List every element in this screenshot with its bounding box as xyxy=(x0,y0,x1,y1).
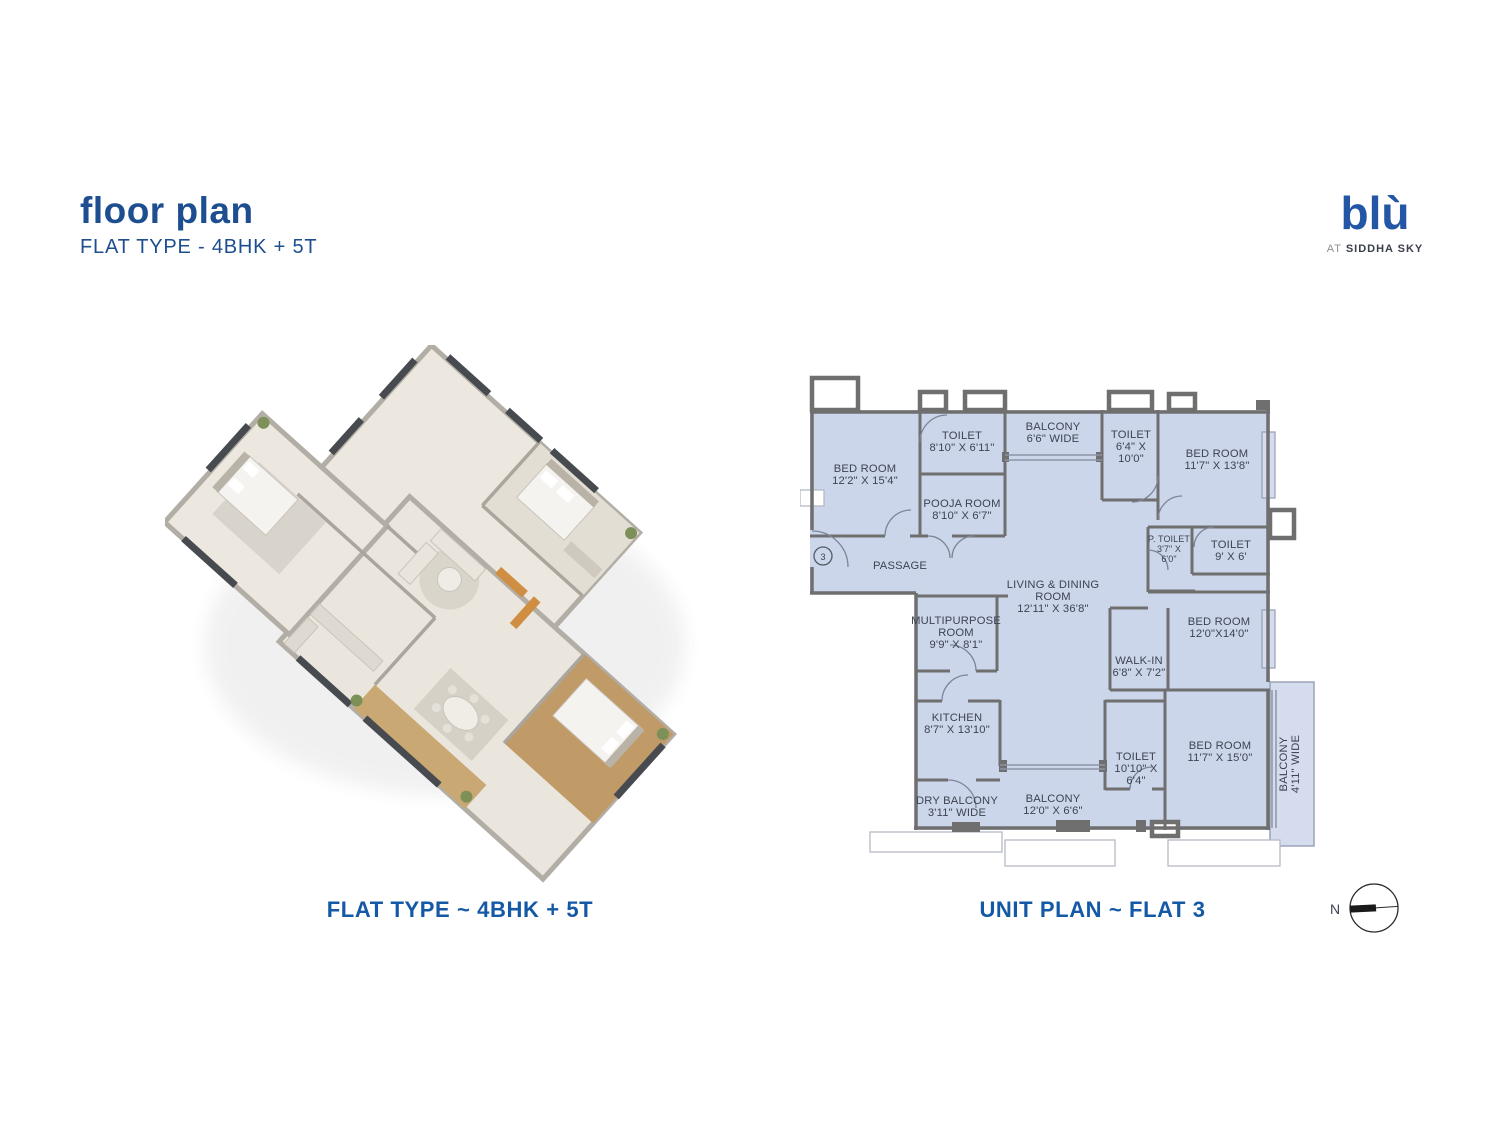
svg-text:11'7" X 15'0": 11'7" X 15'0" xyxy=(1188,752,1253,764)
svg-text:8'10" X 6'11": 8'10" X 6'11" xyxy=(930,442,995,454)
room-label-p-toilet: P. TOILET xyxy=(1148,534,1190,544)
unit-plan-figure: 3 BED ROOM 12'2" X 15'4" TOILET 8'10" X … xyxy=(800,360,1320,875)
page-subtitle: FLAT TYPE - 4BHK + 5T xyxy=(80,236,317,259)
room-label-toilet-4: TOILET xyxy=(1116,751,1156,763)
room-label-toilet-2: TOILET xyxy=(1111,429,1151,441)
compass: N xyxy=(1318,878,1418,940)
room-label-kitchen: KITCHEN xyxy=(932,712,983,724)
room-label-balcony-right: BALCONY xyxy=(1278,736,1290,791)
svg-text:10'0": 10'0" xyxy=(1118,453,1144,465)
svg-text:6'8" X 7'2": 6'8" X 7'2" xyxy=(1113,667,1166,679)
svg-text:6'6" WIDE: 6'6" WIDE xyxy=(1027,433,1080,445)
room-label-pooja: POOJA ROOM xyxy=(923,498,1000,510)
svg-text:3'11" WIDE: 3'11" WIDE xyxy=(928,807,986,819)
svg-text:10'10" X: 10'10" X xyxy=(1114,763,1158,775)
svg-text:8'10" X 6'7": 8'10" X 6'7" xyxy=(932,510,991,522)
page-header: floor plan FLAT TYPE - 4BHK + 5T xyxy=(80,190,317,259)
room-label-bedroom-2: BED ROOM xyxy=(1186,448,1249,460)
svg-text:12'0"X14'0": 12'0"X14'0" xyxy=(1189,628,1248,640)
brand-wordmark: blù xyxy=(1310,188,1440,239)
svg-text:12'2" X 15'4": 12'2" X 15'4" xyxy=(832,475,898,487)
room-label-multipurpose: MULTIPURPOSE xyxy=(911,615,1001,627)
compass-needle xyxy=(1350,902,1398,913)
svg-text:3'7" X: 3'7" X xyxy=(1157,544,1181,554)
room-label-living: LIVING & DINING xyxy=(1007,579,1100,591)
page-title: floor plan xyxy=(80,190,317,232)
svg-text:8'7" X 13'10": 8'7" X 13'10" xyxy=(924,724,990,736)
svg-text:9'9" X 8'1": 9'9" X 8'1" xyxy=(930,639,983,651)
caption-unit-plan: UNIT PLAN ~ FLAT 3 xyxy=(975,897,1210,923)
svg-text:6'0": 6'0" xyxy=(1161,554,1176,564)
svg-text:9' X 6': 9' X 6' xyxy=(1215,551,1247,563)
brand-tagline-name: SIDDHA SKY xyxy=(1346,243,1423,255)
svg-text:12'11" X 36'8": 12'11" X 36'8" xyxy=(1017,603,1088,615)
room-label-toilet-3: TOILET xyxy=(1211,539,1251,551)
svg-text:6'4" X: 6'4" X xyxy=(1116,441,1147,453)
brand-tagline: AT SIDDHA SKY xyxy=(1310,243,1440,255)
svg-text:12'0" X 6'6": 12'0" X 6'6" xyxy=(1023,805,1082,817)
svg-text:ROOM: ROOM xyxy=(1035,591,1071,603)
room-label-passage: PASSAGE xyxy=(873,560,927,572)
floorplan-3d-render xyxy=(165,345,765,890)
svg-text:6'4": 6'4" xyxy=(1126,775,1145,787)
svg-text:ROOM: ROOM xyxy=(938,627,974,639)
svg-text:11'7" X 13'8": 11'7" X 13'8" xyxy=(1185,460,1250,472)
svg-text:4'11" WIDE: 4'11" WIDE xyxy=(1290,735,1302,793)
brochure-page: floor plan FLAT TYPE - 4BHK + 5T blù AT … xyxy=(0,0,1500,1125)
room-label-bedroom-3: BED ROOM xyxy=(1188,616,1251,628)
room-label-walk-in: WALK-IN xyxy=(1115,655,1163,667)
caption-flat-type: FLAT TYPE ~ 4BHK + 5T xyxy=(320,897,600,923)
room-label-bedroom-4: BED ROOM xyxy=(1189,740,1252,752)
room-label-bedroom-1: BED ROOM xyxy=(834,463,897,475)
room-label-balcony-bottom: BALCONY xyxy=(1026,793,1081,805)
room-label-toilet-1: TOILET xyxy=(942,430,982,442)
room-label-balcony-top: BALCONY xyxy=(1026,421,1081,433)
room-label-dry-balcony: DRY BALCONY xyxy=(916,795,998,807)
entrance-marker-label: 3 xyxy=(820,552,825,562)
compass-n-label: N xyxy=(1330,901,1340,917)
brand-logo: blù AT SIDDHA SKY xyxy=(1310,188,1440,255)
brand-tagline-prefix: AT xyxy=(1327,243,1342,255)
